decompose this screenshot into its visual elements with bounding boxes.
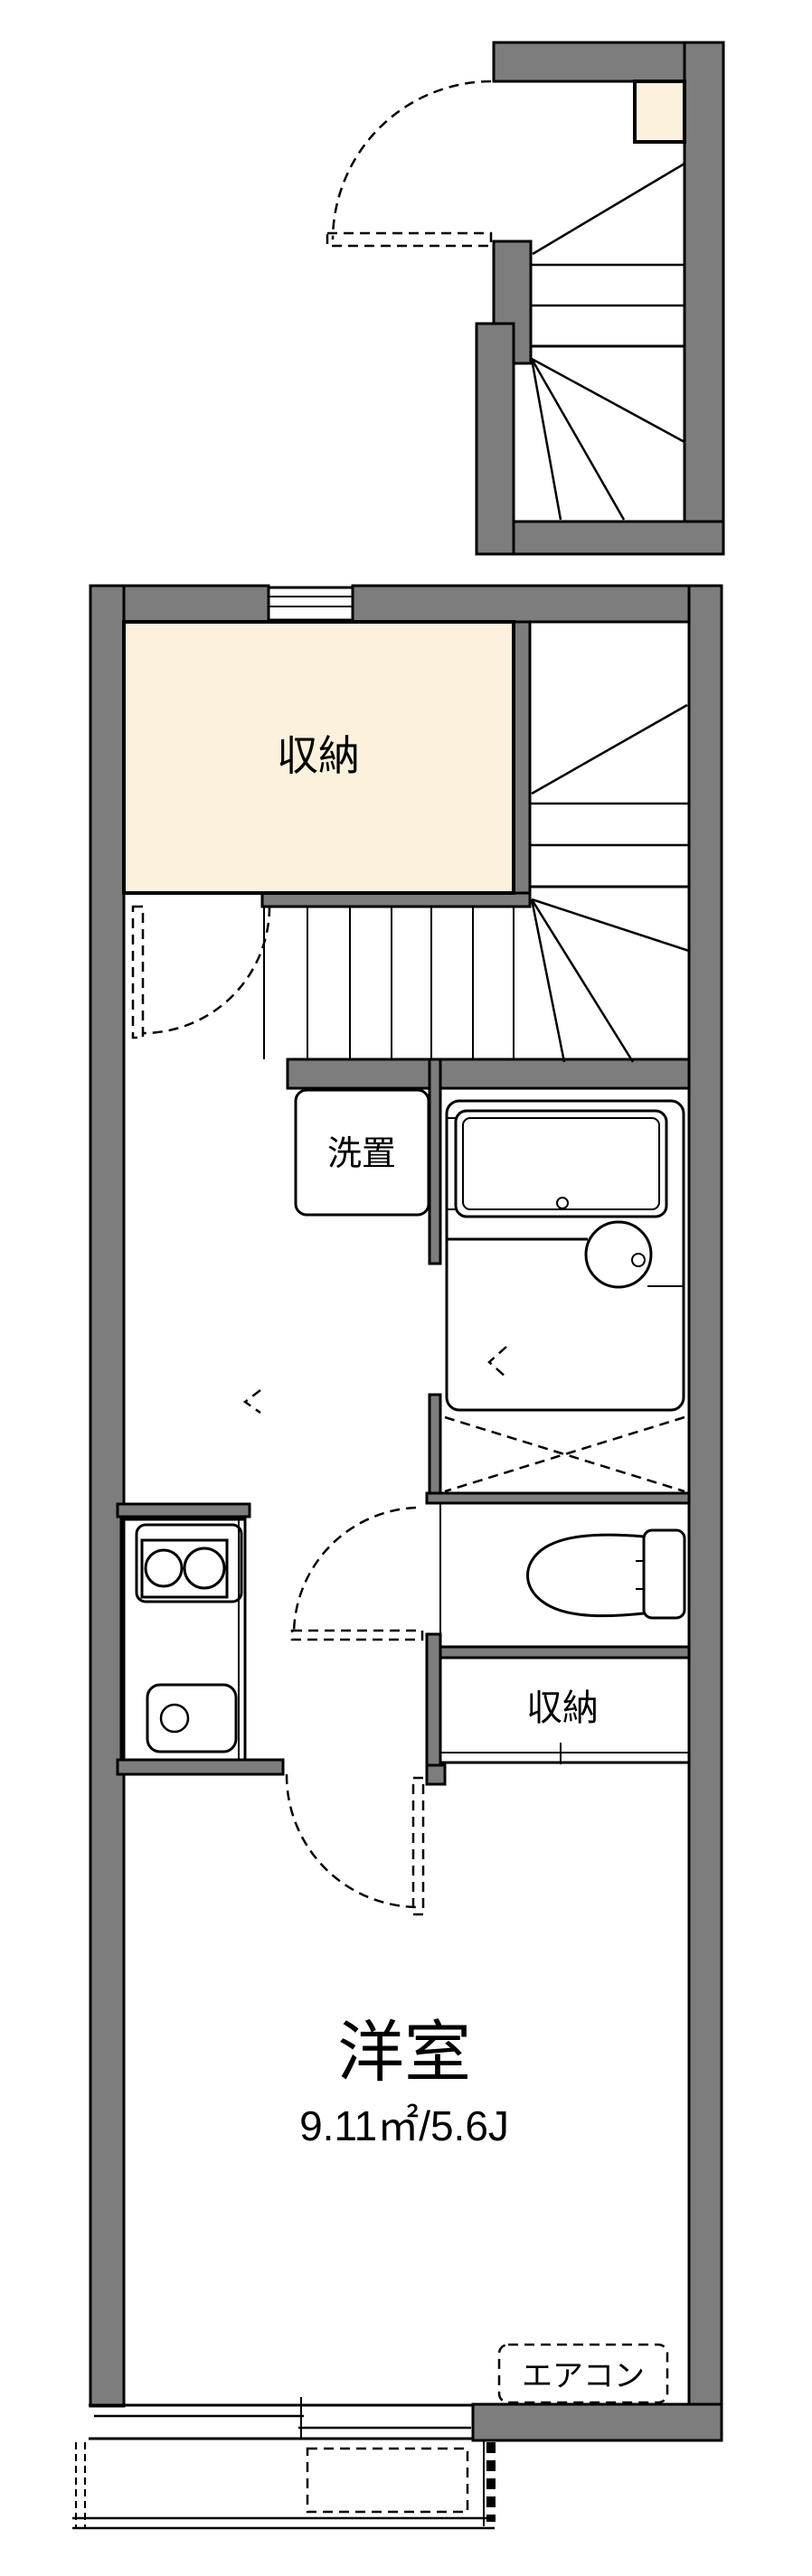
wall-right <box>689 586 722 2440</box>
bath-unit <box>447 1101 684 1410</box>
western-room-area: 9.11㎡/5.6J <box>299 2102 509 2149</box>
window-bottom <box>89 2397 473 2439</box>
wall-bath-divider-lower <box>430 1395 440 1502</box>
wall-top-right <box>353 586 722 622</box>
toilet-door <box>292 1508 422 1640</box>
entrance-door <box>327 81 491 246</box>
laundry-label: 洗置 <box>327 1135 396 1173</box>
floor-plan-drawing: 収納 洗置 <box>0 0 812 2576</box>
storage-room-lower: 収納 <box>440 1658 689 1764</box>
stairs-upper <box>531 164 685 520</box>
storage-upper-door <box>133 907 269 1038</box>
laundry-space: 洗置 <box>296 1090 429 1215</box>
wall-hall-storage <box>427 1634 440 1765</box>
sink-drain <box>161 1705 188 1732</box>
toilet-room <box>440 1503 689 1647</box>
shoe-box <box>635 81 685 142</box>
western-room-door <box>287 1774 423 1914</box>
toilet-bowl <box>528 1535 645 1616</box>
window-top <box>269 588 353 620</box>
entrance-stair-block <box>327 42 723 554</box>
wall-stub-bottom-right <box>427 1765 445 1784</box>
storage-lower-label: 収納 <box>526 1688 599 1728</box>
wall-bath-divider-upper <box>430 1059 440 1264</box>
storage-room-upper: 収納 <box>124 622 514 893</box>
bathroom <box>447 1101 684 1410</box>
balcony-service-area <box>307 2449 467 2512</box>
wall-left <box>90 586 124 2406</box>
bathtub-inner <box>463 1118 659 1209</box>
floor-plan-page: 収納 洗置 <box>0 0 812 2576</box>
burner-right <box>184 1548 224 1588</box>
wall <box>477 324 514 554</box>
bathtub-drain <box>557 1198 568 1208</box>
wall-under-storage <box>262 893 530 907</box>
washbasin-drain <box>632 1254 645 1266</box>
aircon-label: エアコン <box>522 2359 645 2393</box>
wall-stair-bottom <box>288 1059 689 1088</box>
bath-door-chevron <box>489 1347 506 1377</box>
wall-kitchen-top <box>118 1504 250 1517</box>
bath-folding-door <box>445 1417 685 1491</box>
western-room-label: 洋室 <box>337 2015 471 2090</box>
kitchen <box>121 1519 245 1760</box>
hall-door-chevron <box>245 1390 260 1413</box>
wall-toilet-bottom <box>427 1647 689 1658</box>
bathtub <box>456 1111 666 1217</box>
wall-bottom <box>473 2404 722 2440</box>
toilet-tank <box>644 1530 685 1618</box>
balcony <box>72 2440 495 2528</box>
storage-upper-label: 収納 <box>277 732 360 779</box>
western-room: 洋室 9.11㎡/5.6J エアコン <box>287 1774 667 2402</box>
burner-left <box>146 1550 182 1586</box>
wall-hall-bottom <box>118 1760 283 1774</box>
wall <box>685 42 723 554</box>
wall-toilet-top <box>427 1493 689 1503</box>
aircon-box: エアコン <box>499 2345 667 2402</box>
